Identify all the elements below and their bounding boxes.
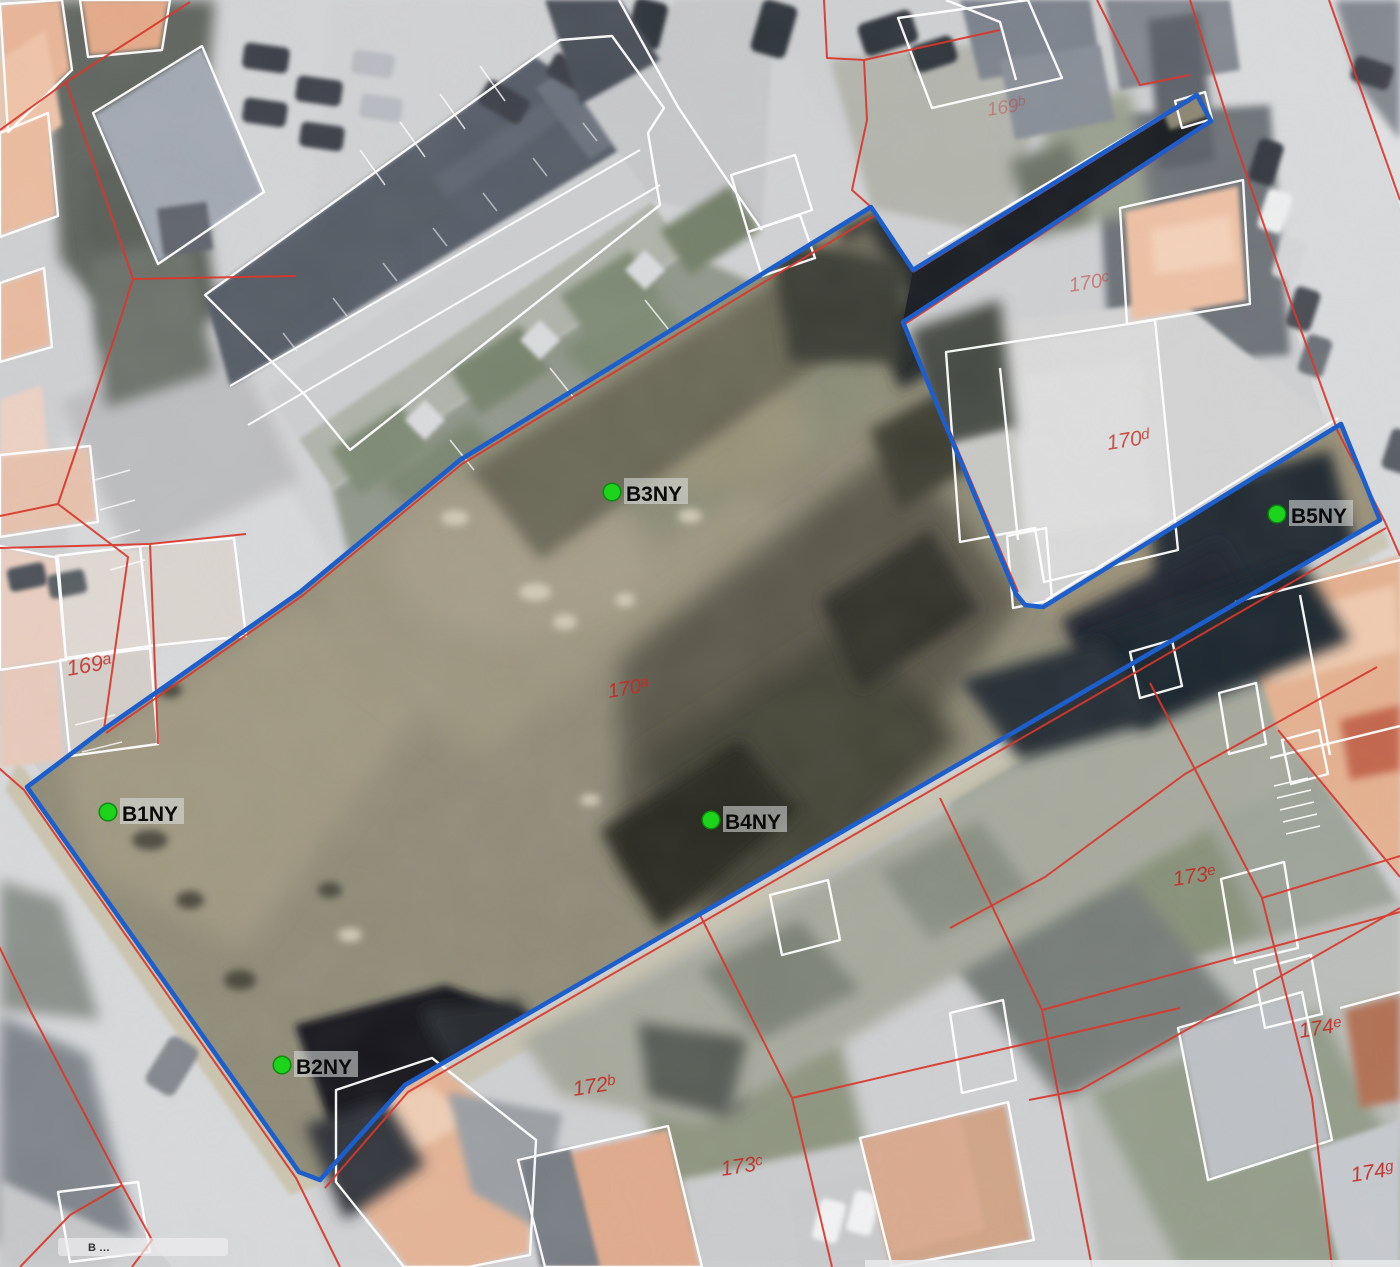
- svg-text:B1NY: B1NY: [122, 803, 178, 826]
- svg-text:B2NY: B2NY: [296, 1056, 352, 1079]
- svg-text:B …: B …: [88, 1242, 110, 1254]
- svg-text:B4NY: B4NY: [725, 811, 781, 834]
- svg-text:B3NY: B3NY: [626, 483, 682, 506]
- svg-text:B5NY: B5NY: [1291, 505, 1347, 528]
